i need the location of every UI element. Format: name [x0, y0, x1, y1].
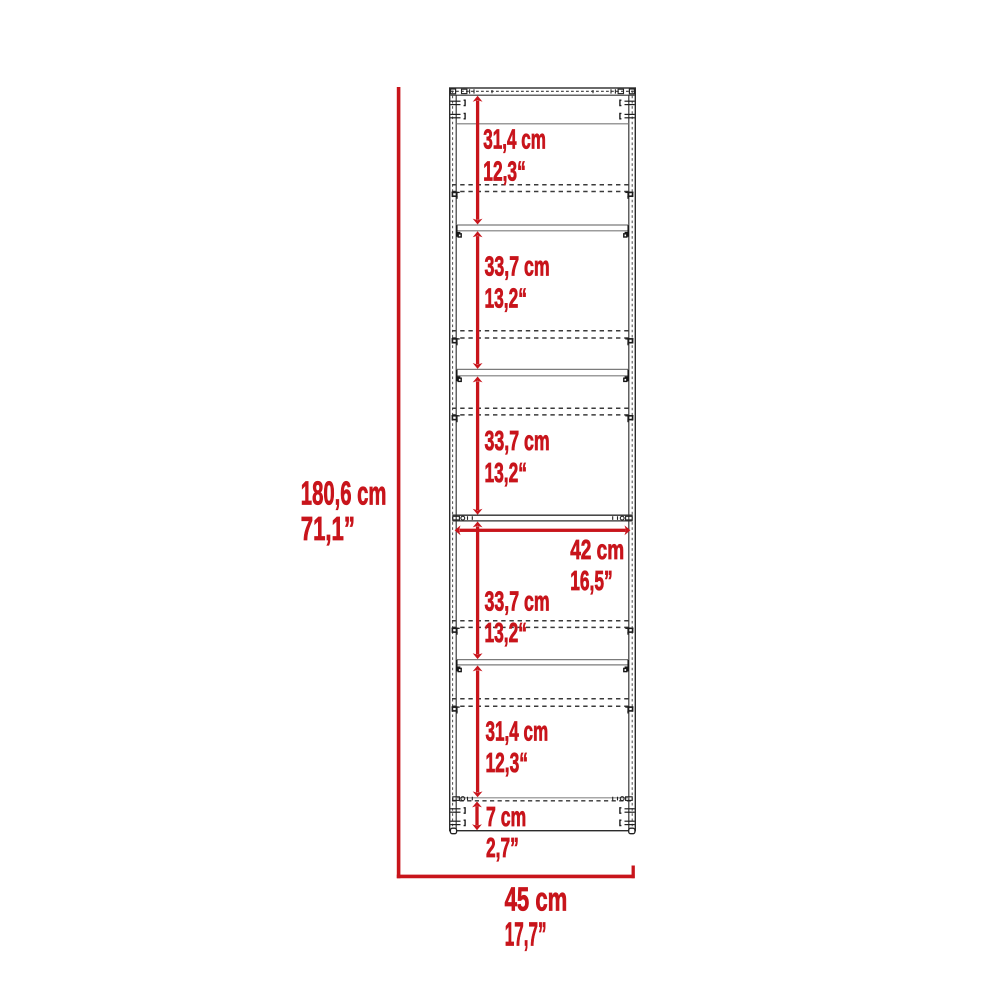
svg-text:31,4 cm: 31,4 cm — [483, 123, 546, 154]
svg-text:12,3“: 12,3“ — [483, 155, 525, 186]
svg-text:33,7 cm: 33,7 cm — [485, 585, 550, 616]
svg-text:2,7”: 2,7” — [486, 832, 519, 863]
svg-text:13,2“: 13,2“ — [485, 617, 527, 648]
svg-text:71,1”: 71,1” — [301, 511, 355, 549]
svg-text:13,2“: 13,2“ — [485, 282, 527, 313]
svg-text:31,4 cm: 31,4 cm — [486, 715, 549, 746]
svg-text:33,7 cm: 33,7 cm — [485, 425, 550, 456]
svg-text:7 cm: 7 cm — [486, 801, 526, 832]
svg-text:13,2“: 13,2“ — [485, 457, 527, 488]
svg-text:16,5”: 16,5” — [570, 565, 612, 596]
svg-text:45 cm: 45 cm — [505, 881, 568, 919]
svg-text:17,7”: 17,7” — [505, 915, 547, 953]
svg-text:42 cm: 42 cm — [570, 534, 624, 566]
svg-text:12,3“: 12,3“ — [486, 747, 528, 778]
svg-text:33,7 cm: 33,7 cm — [485, 250, 550, 281]
svg-text:180,6 cm: 180,6 cm — [301, 474, 387, 512]
